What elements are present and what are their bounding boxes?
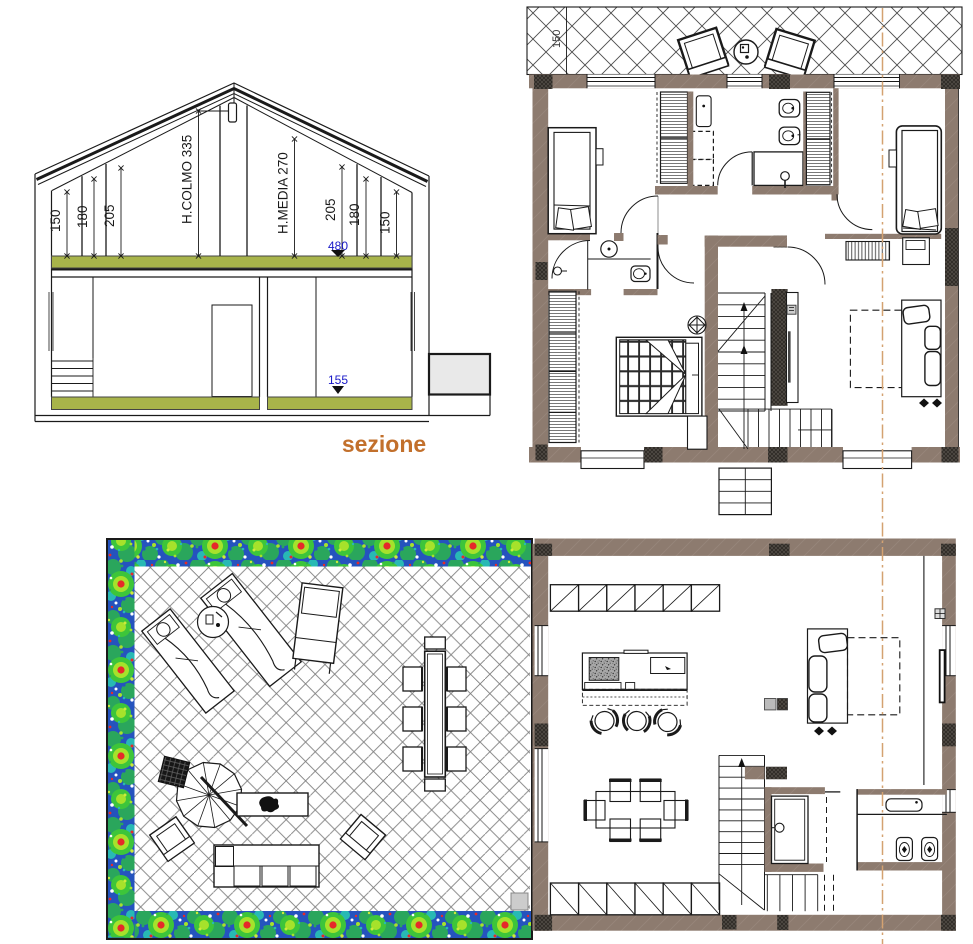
svg-text:155: 155 [328, 373, 348, 387]
svg-text:205: 205 [102, 204, 117, 227]
svg-text:205: 205 [323, 198, 338, 221]
svg-text:180: 180 [75, 205, 90, 228]
svg-text:150: 150 [48, 209, 63, 232]
svg-text:sezione: sezione [342, 431, 426, 457]
svg-text:150: 150 [551, 30, 563, 48]
svg-text:H.MEDIA 270: H.MEDIA 270 [276, 152, 291, 234]
svg-text:180: 180 [347, 203, 362, 226]
svg-text:H.COLMO 335: H.COLMO 335 [180, 135, 195, 224]
svg-text:150: 150 [378, 211, 393, 234]
